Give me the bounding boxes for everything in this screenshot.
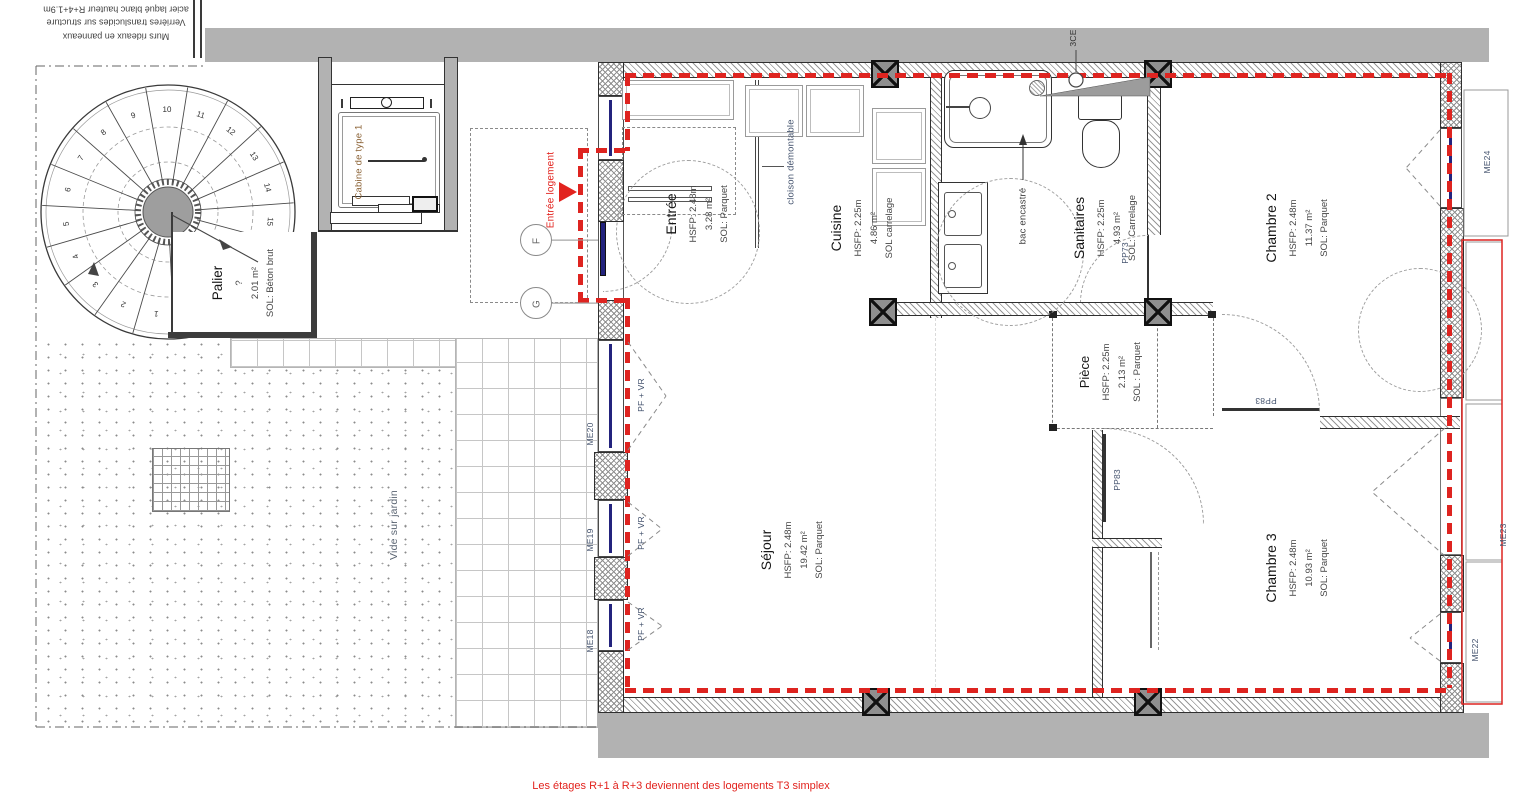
elevator-sill [330,212,422,224]
stair-step-number: 8 [99,127,109,137]
room-hsfp: HSFP: 2.48m [1286,193,1302,262]
room-hsfp: HSFP: 2.48m [686,185,702,243]
kitchen-counter [806,85,864,137]
stair-step-number: 11 [195,109,206,120]
stair-tread-line [42,205,138,210]
elevator-shaft-wall [318,57,332,232]
window-code-me18: ME18 [585,629,595,652]
window-code-me24: ME24 [1482,150,1492,173]
room-area: 4.86 m² [866,198,882,259]
room-floor: SOL : Parquet [1130,342,1146,402]
room-label-entree: Entrée HSFP: 2.48m 3.28 m² SOL: Parquet [662,185,733,243]
stair-tread-line [146,88,163,182]
elevator-label: Cabine de type 1 [354,124,365,199]
apartment-outline-red [578,148,630,153]
kitchen-appliance [872,108,926,164]
entry-arrow-triangle [559,182,577,202]
stair-step-number: 5 [61,221,71,227]
stair-step-number: 9 [130,110,138,120]
stair-step-number: 7 [76,153,86,162]
room-area: 11.37 m² [1301,193,1317,262]
stair-step-number: 6 [63,186,73,193]
sejour-grid-dashed [935,318,936,697]
apartment-outline-red [625,75,630,151]
room-area: 3.28 m² [701,185,717,243]
top-wall-band [205,28,1489,62]
wall-pier [594,557,628,600]
piece-dashed-wall [1157,318,1158,428]
entry-label: Entrée logement [546,152,557,228]
apartment-outline-red [625,73,1452,78]
elevator-lintel-line [332,84,444,85]
wall-south [598,697,1460,713]
toilet-bowl [1082,120,1120,168]
room-name: Entrée [662,185,681,243]
axis-line-g [552,303,600,304]
turning-circle-sanitaires [936,178,1084,326]
door-code-pp73: PP73 [1120,242,1130,264]
closet-wall-stub [1092,538,1162,548]
door-code-pp83: PP83 [1112,469,1122,491]
room-hsfp: HSFP: 2.25m [1094,195,1110,261]
bathtub-handle [946,106,970,108]
elevator-cab-arrow [368,160,424,162]
column-marker [1144,298,1172,326]
stair-step-number: 1 [153,309,159,319]
wall-pier [594,452,628,500]
apartment-outline-red [625,298,630,692]
note-line: Murs rideaux en panneaux [14,29,218,43]
wall-chambre2-south [1320,416,1460,429]
room-hsfp: HSFP: 2.25m [1099,342,1115,402]
bottom-wall-band [598,713,1489,758]
tree-grate [152,448,230,512]
stair-step-number: 13 [248,150,261,163]
room-label-palier: Palier ? 2.01 m² SOL: Béton brut [208,249,279,317]
stair-cut-line [171,212,173,333]
stair-tread-line [196,162,284,200]
stair-step-number: 10 [162,105,172,114]
wall-pier [598,300,624,340]
elevator-door-tick [341,99,343,108]
stair-step-number: 3 [90,279,100,289]
stair-tread-line [190,127,261,192]
door-pp73-opening [1147,235,1161,302]
elevator-cab-arrow-dot [422,157,427,162]
landing-wall-east [311,232,317,337]
note-line: Verrières translucides sur structure [14,16,218,30]
window-me20 [598,340,624,452]
window-me18 [598,600,624,651]
closet-front-dashed [1158,552,1159,650]
partition-label: cloison démontable [786,119,797,204]
room-level: ? [232,249,248,317]
turning-circle-chambre2 [1358,268,1482,392]
room-floor: SOL carrelage [882,198,898,259]
elevator-shaft-wall [444,57,458,232]
room-label-chambre2: Chambre 2 HSFP: 2.48m 11.37 m² SOL: Parq… [1262,193,1333,262]
room-floor: SOL: Parquet [717,185,733,243]
room-floor: SOL: Parquet [1317,533,1333,602]
closet-front-line [1150,552,1152,648]
curtain-wall-note: Murs rideaux en panneaux Verrières trans… [14,2,218,43]
toilet-tank [1078,94,1122,120]
room-area: 10.93 m² [1301,533,1317,602]
room-hsfp: HSFP: 2.48m [1286,533,1302,602]
stair-step-number: 4 [70,252,80,260]
window-type-pfvr: PF + VR [636,516,646,550]
paving-tiles [455,338,598,728]
stair-step-number: 15 [265,217,275,227]
room-name: Chambre 3 [1262,533,1281,602]
plan-footer-note: Les étages R+1 à R+3 deviennent des loge… [516,780,846,792]
axis-bubble-g: G [520,287,552,319]
apartment-outline-red [1447,73,1452,688]
window-code-me22: ME22 [1470,638,1480,661]
room-label-chambre3: Chambre 3 HSFP: 2.48m 10.93 m² SOL: Parq… [1262,533,1333,602]
landing-wall-south [168,332,317,338]
room-floor: SOL: Parquet [1317,193,1333,262]
note-line: acier laqué blanc hauteur R+4+1.9m [14,2,218,16]
apartment-outline-red [625,688,1452,693]
garden-label: Vide sur jardin [388,490,400,560]
bathtub-drain [1029,80,1045,96]
room-hsfp: HSFP: 2.48m [781,521,797,579]
entry-wardrobe [622,80,734,120]
duct-label: 3CE [1068,29,1078,46]
room-floor: SOL: Béton brut [263,249,279,317]
piece-dashed-wall [1052,428,1213,429]
stair-step-number: 2 [119,299,127,309]
room-label-cuisine: Cuisine HSFP: 2.25m 4.86 m² SOL carrelag… [827,198,898,259]
window-type-pfvr: PF + VR [636,607,646,641]
window-me19 [598,500,624,557]
stair-tread-line [173,88,188,183]
apartment-outline-red [578,148,583,303]
apartment-outline-red [578,298,630,303]
stair-tread-line [198,203,294,210]
room-label-piece: Pièce HSFP: 2.25m 2.13 m² SOL : Parquet [1075,342,1146,402]
piece-dashed-wall [1213,318,1214,416]
door-code-pp83: PP83 [1255,396,1277,406]
room-name: Sanitaires [1070,195,1089,261]
room-name: Cuisine [827,198,846,259]
room-area: 19.42 m² [796,521,812,579]
landing-dashed-zone [470,128,588,303]
room-name: Chambre 2 [1262,193,1281,262]
elevator-pit-line [318,230,458,232]
room-area: 2.13 m² [1114,342,1130,402]
stair-step-number: 12 [225,125,238,138]
partition-pointer [762,166,784,167]
wall-sanitaires-chambre2 [1147,78,1161,235]
floor-plan: 123456789101112131415 F G [0,0,1515,800]
room-label-sejour: Séjour HSFP: 2.48m 19.42 m² SOL: Parquet [757,521,828,579]
wall-sejour-chambre3 [1092,430,1103,697]
room-area: 2.01 m² [247,249,263,317]
wall-end-post [1208,311,1216,318]
axis-bubble-f: F [520,224,552,256]
room-name: Séjour [757,521,776,579]
room-hsfp: HSFP: 2.25m [851,198,867,259]
bathtub-faucet [969,97,991,119]
axis-letter-f: F [532,238,543,244]
wall-pier [598,651,624,713]
axis-letter-g: G [532,300,543,308]
window-code-me19: ME19 [585,528,595,551]
window-type-pfvr: PF + VR [636,378,646,412]
wall-pier [598,62,624,96]
piece-dashed-wall [1052,318,1053,428]
stair-tread-line [51,164,140,200]
spandrel-panel [1440,555,1464,612]
elevator-door-roller [381,97,392,108]
tub-label: bac encastré [1018,188,1029,245]
window-code-me23: ME23 [1498,523,1508,546]
balcony-strips [1464,90,1508,702]
wall-end-post [1049,424,1057,431]
stair-step-number: 14 [262,182,273,193]
column-marker [869,298,897,326]
stair-direction-arrow [88,262,99,276]
window-code-me20: ME20 [585,422,595,445]
elevator-door-tick [430,99,432,108]
room-name: Palier [208,249,227,317]
room-name: Pièce [1075,342,1094,402]
elevator-counterweight [412,196,438,212]
room-floor: SOL: Parquet [812,521,828,579]
